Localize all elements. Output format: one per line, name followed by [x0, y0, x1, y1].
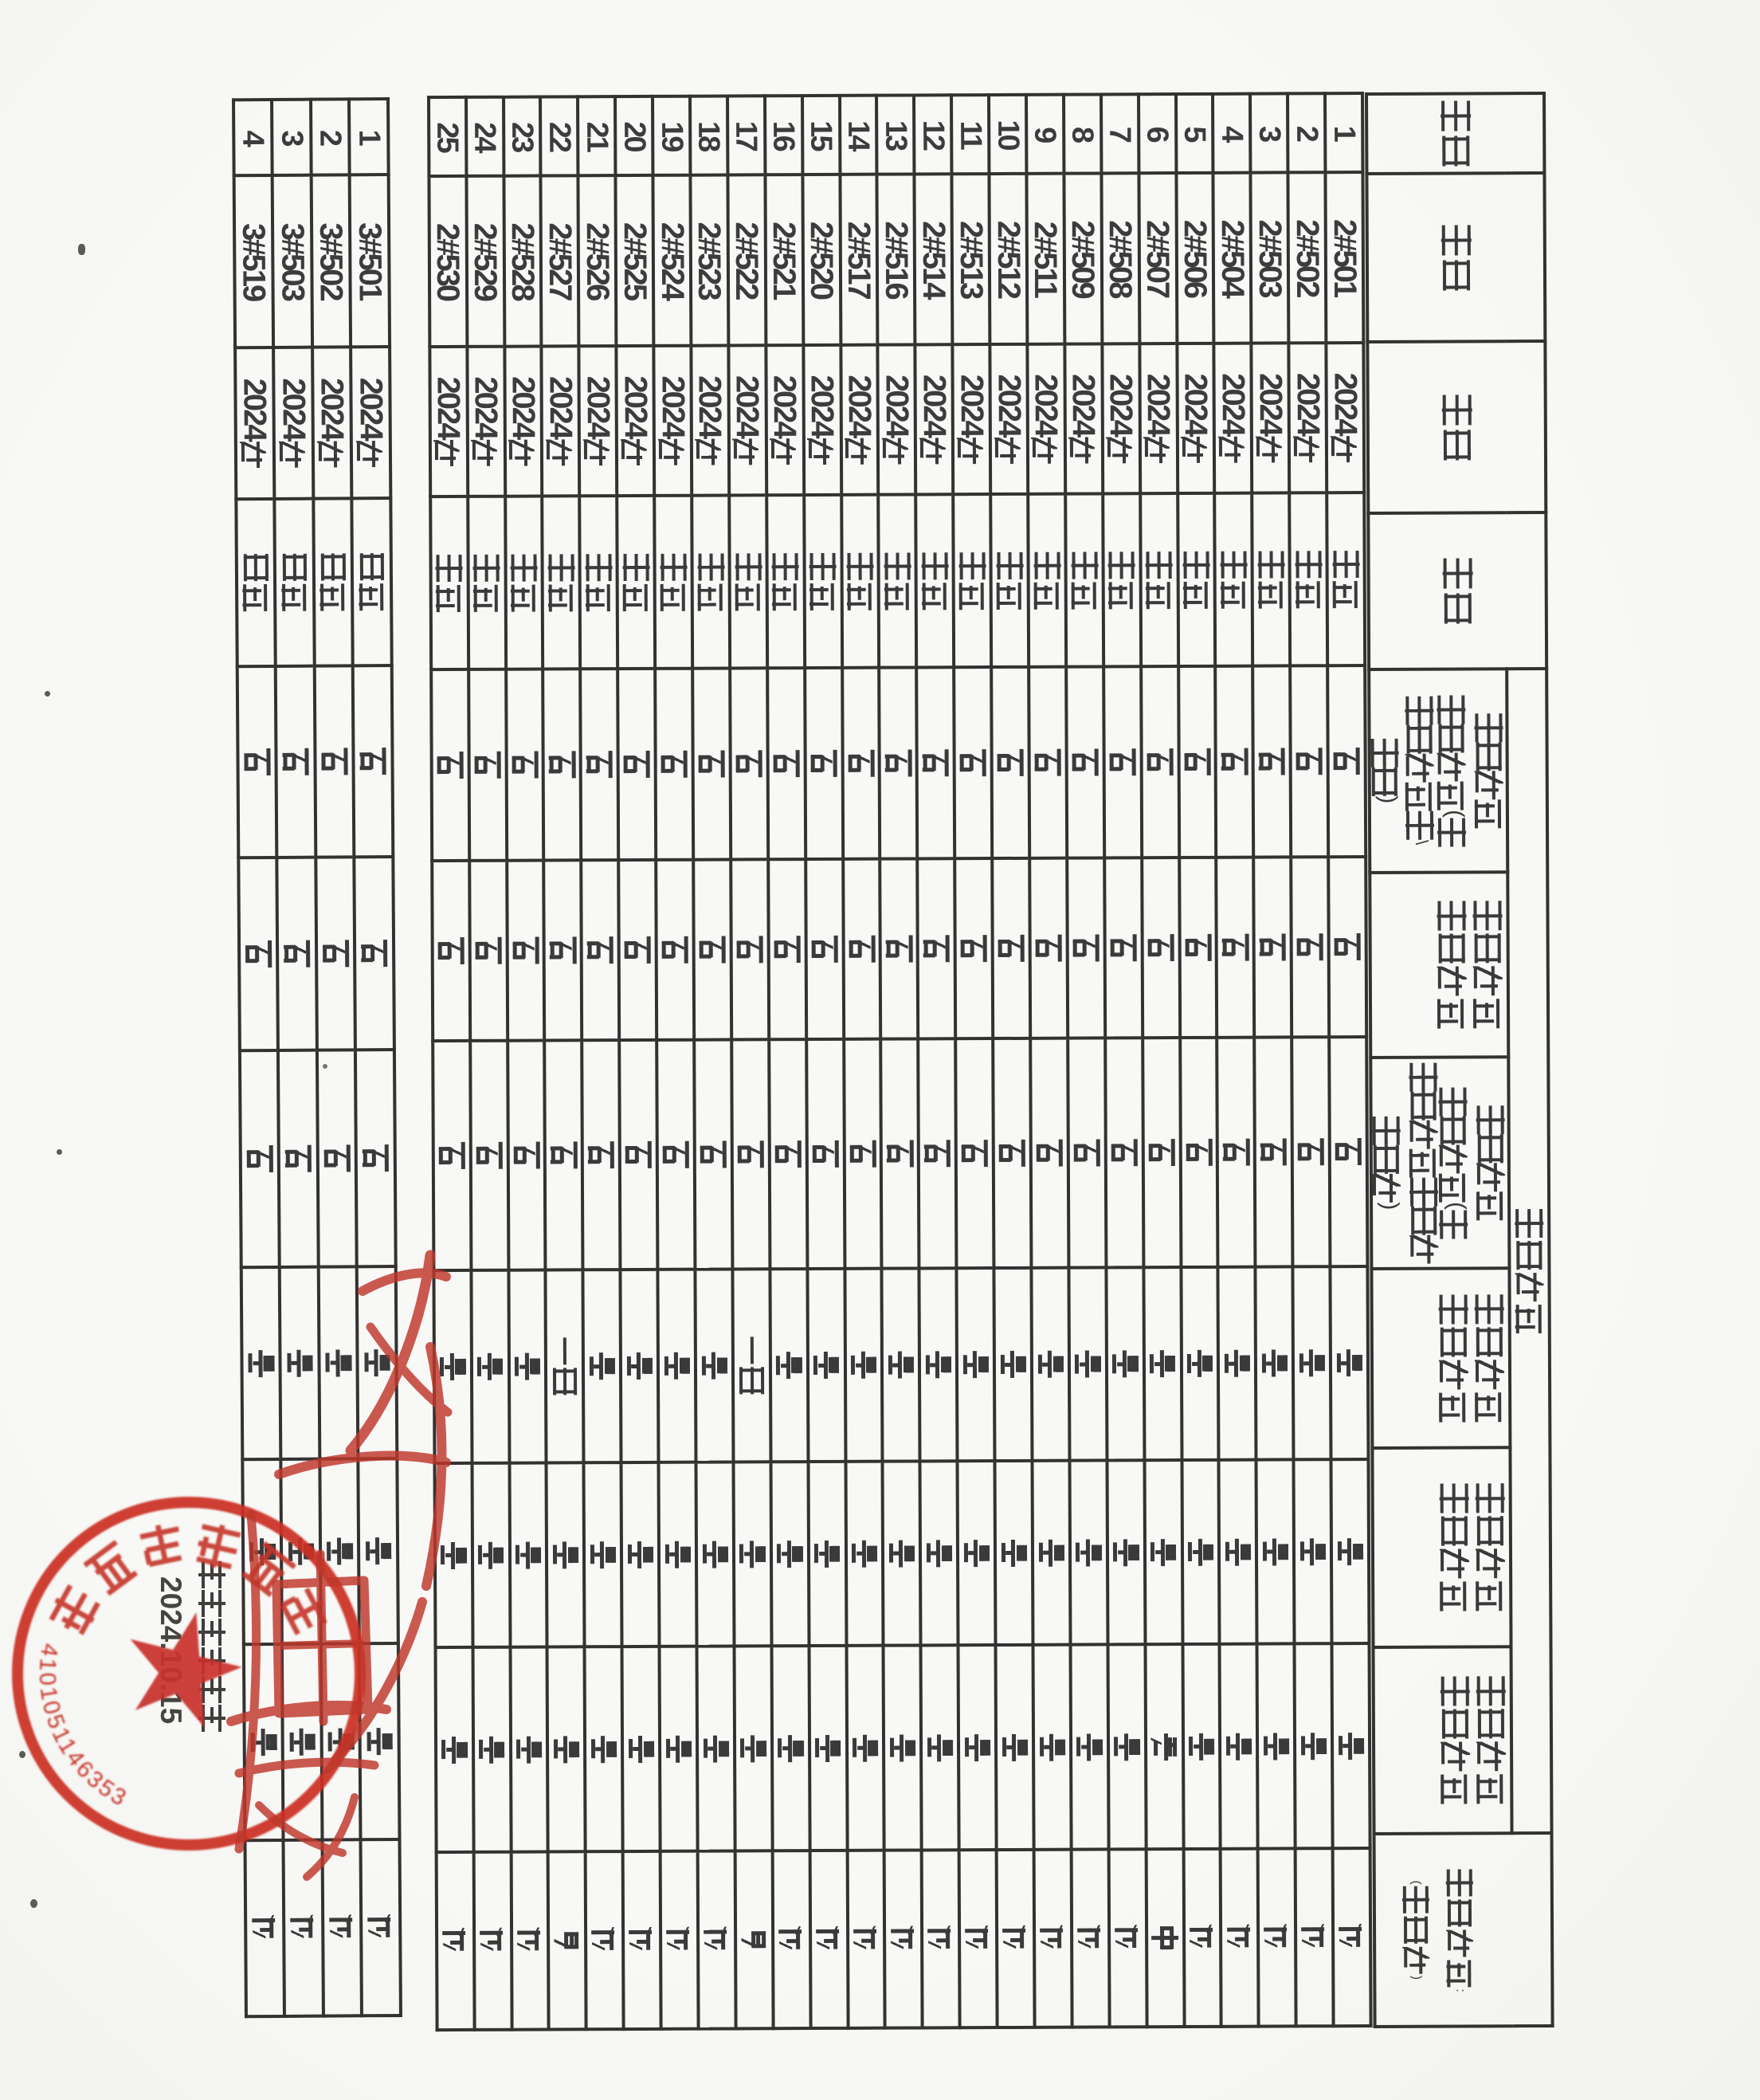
svg-text:4101051146353: 4101051146353 [34, 1642, 132, 1812]
